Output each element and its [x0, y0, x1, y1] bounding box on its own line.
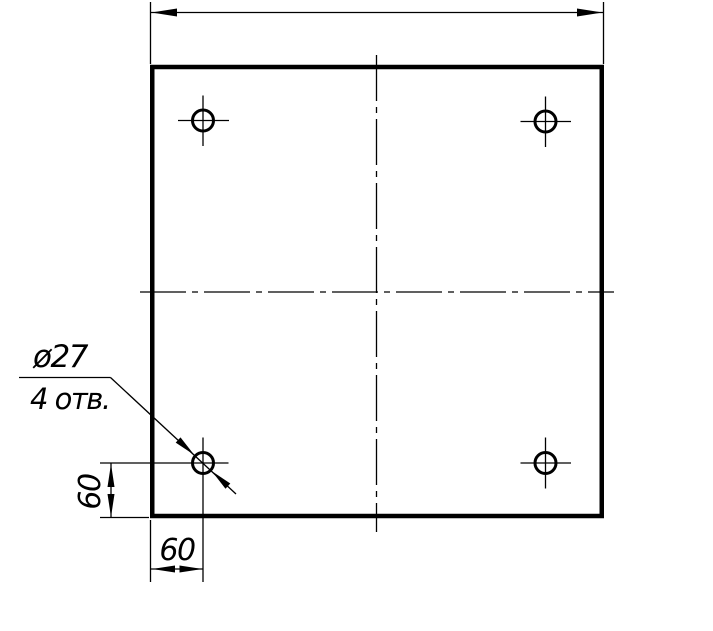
- dimension-top-overall: [151, 2, 604, 64]
- leader-arrowhead-upper: [176, 437, 195, 455]
- arrowhead-left: [152, 9, 178, 17]
- leader-arrowhead-lower: [212, 471, 231, 489]
- hole-top-left: [178, 96, 229, 147]
- dimension-hole-offset-vertical: 60: [73, 464, 149, 518]
- drawing-canvas: 60 60 ø27 4 отв.: [0, 0, 713, 631]
- dimension-value-vertical: 60: [73, 474, 108, 510]
- hole-bottom-right: [521, 438, 572, 489]
- hole-diameter-label: ø27: [32, 339, 89, 375]
- arrowhead-up: [108, 464, 115, 487]
- arrowhead-down: [108, 494, 115, 517]
- holes-count-label: 4 отв.: [30, 382, 110, 416]
- dimension-value-horizontal: 60: [159, 533, 195, 568]
- hole-top-right: [521, 97, 572, 148]
- technical-drawing: 60 60 ø27 4 отв.: [0, 0, 713, 631]
- dimension-hole-offset-horizontal: 60: [151, 520, 204, 582]
- arrowhead-right: [577, 9, 603, 17]
